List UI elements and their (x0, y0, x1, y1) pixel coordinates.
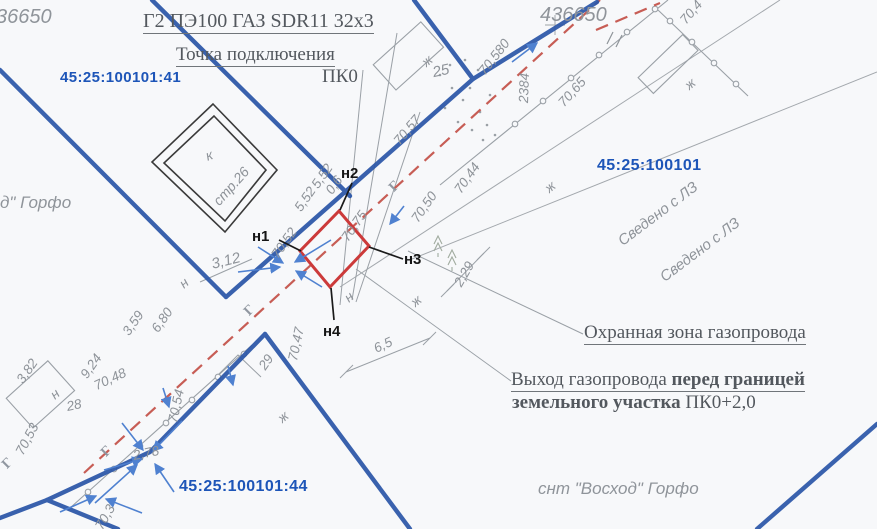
outlet-label-bold2: земельного участка (512, 392, 685, 413)
survey-mark: 2384 (516, 73, 532, 104)
tree-icon (434, 236, 456, 271)
outlet-label-bold: перед границей (672, 369, 805, 390)
outlet-label-line2: земельного участка ПК0+2,0 (512, 392, 756, 414)
point-label-n4: н4 (323, 323, 340, 340)
outlet-label-pk: ПК0+2,0 (685, 392, 755, 413)
place-name-snt: снт "Восход" Горфо (538, 479, 699, 499)
cadastral-number-parcel-41: 45:25:100101:41 (60, 69, 181, 86)
pipe-spec-label: Г2 ПЭ100 ГАЗ SDR11 32x3 (143, 10, 374, 34)
place-name-left: д" Горфо (0, 193, 71, 213)
grid-coordinate: 36650 (0, 6, 52, 29)
connection-point-pk0: ПК0 (322, 66, 358, 88)
thin-boundary-lines (340, 0, 877, 287)
survey-mark: 28 (65, 396, 83, 414)
point-label-n1: н1 (252, 228, 269, 245)
building-number: 25 (431, 61, 451, 81)
grid-coordinate: 436650 (540, 4, 607, 27)
point-label-n3: н3 (404, 251, 421, 268)
outlet-label-line1: Выход газопровода перед границей (511, 369, 805, 392)
building-outline-k-str26 (152, 104, 277, 232)
protection-zone-label: Охранная зона газопровода (584, 322, 806, 345)
cadastral-number-parcel-44: 45:25:100101:44 (179, 478, 308, 496)
survey-tick-marks (607, 32, 622, 47)
connection-point-label: Точка подключения (176, 44, 335, 67)
cadastral-map: 36650 436650 45:25:100101:41 45:25:10010… (0, 0, 877, 529)
outlet-label-normal: Выход газопровода (511, 369, 672, 390)
building-outline-zh25 (373, 22, 443, 90)
cadastral-number-quarter: 45:25:100101 (597, 157, 701, 175)
